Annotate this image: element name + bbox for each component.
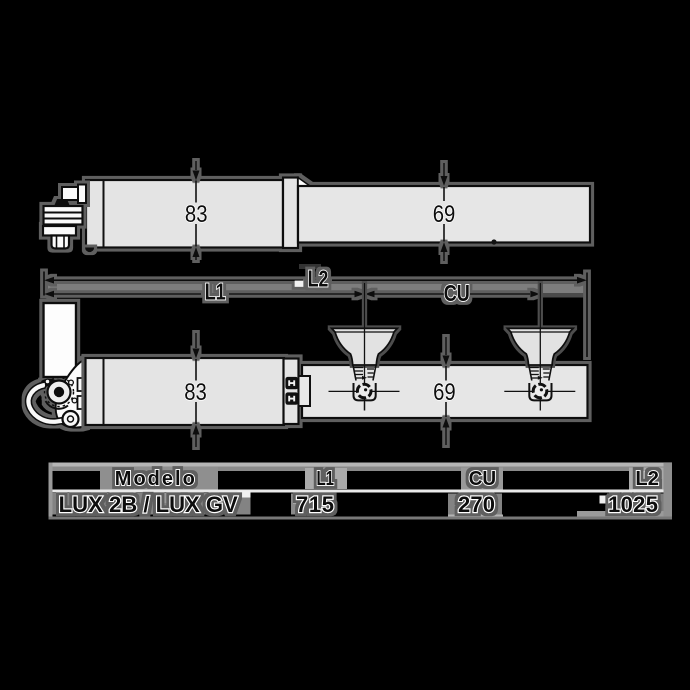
svg-text:L2: L2 bbox=[635, 468, 659, 490]
svg-text:L1: L1 bbox=[205, 279, 226, 305]
svg-text:Modelo: Modelo bbox=[115, 468, 195, 490]
svg-text:CU: CU bbox=[444, 280, 470, 306]
svg-text:270: 270 bbox=[458, 492, 495, 517]
svg-text:L1: L1 bbox=[317, 468, 335, 490]
svg-text:LUX 2B / LUX GV: LUX 2B / LUX GV bbox=[59, 492, 238, 517]
svg-text:715: 715 bbox=[296, 492, 334, 517]
svg-text:1025: 1025 bbox=[608, 492, 658, 517]
svg-text:L2: L2 bbox=[308, 265, 329, 291]
svg-text:83: 83 bbox=[184, 379, 207, 406]
svg-text:69: 69 bbox=[433, 379, 456, 406]
svg-text:83: 83 bbox=[185, 201, 208, 228]
svg-text:69: 69 bbox=[433, 201, 456, 228]
svg-text:CU: CU bbox=[469, 468, 496, 490]
